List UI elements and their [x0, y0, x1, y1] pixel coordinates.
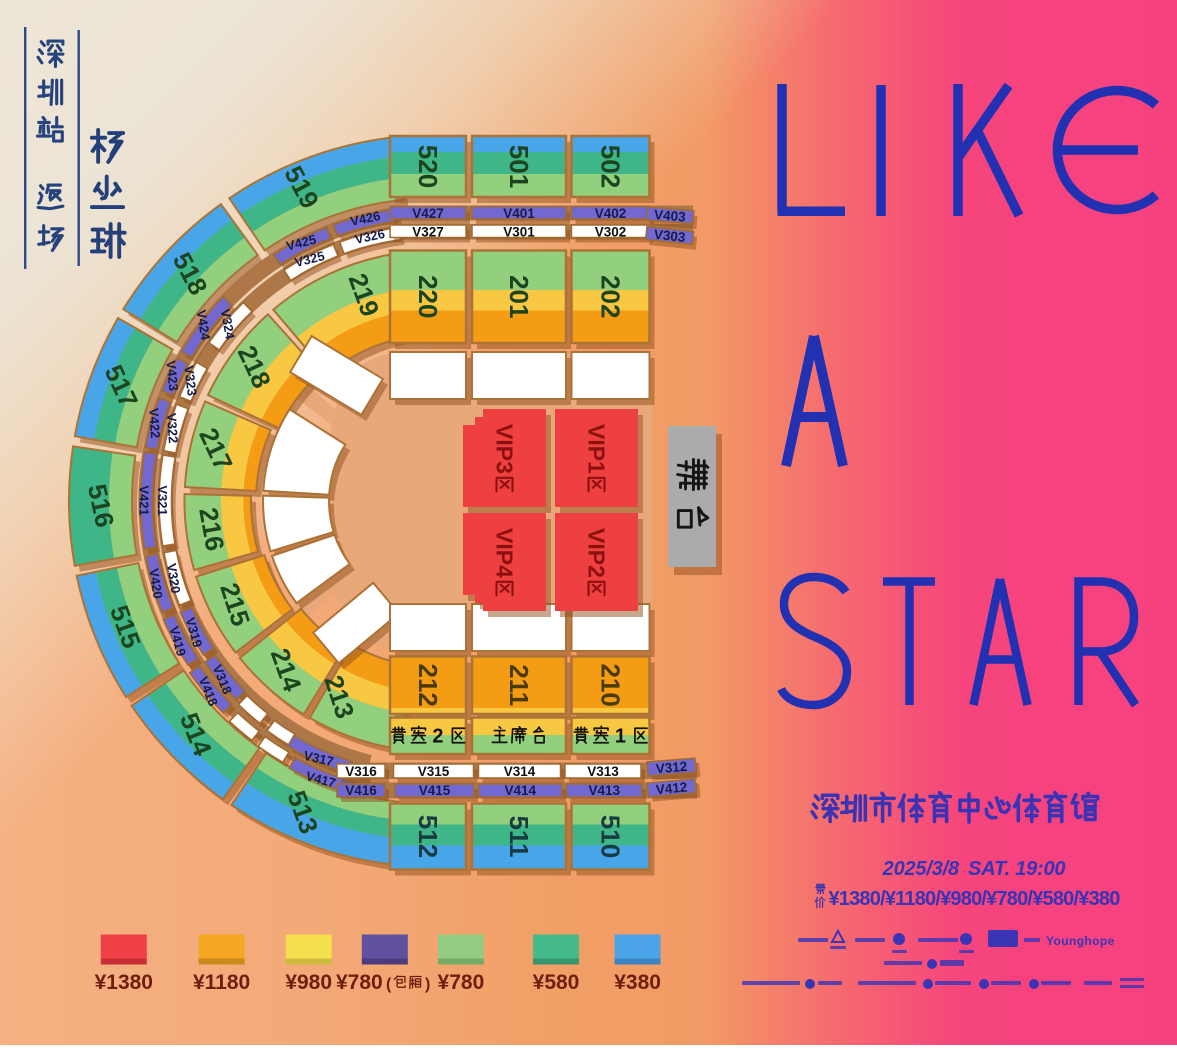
svg-text:2: 2	[432, 726, 443, 748]
svg-text:V321: V321	[155, 485, 170, 515]
svg-text:V422: V422	[146, 408, 163, 439]
svg-text:¥980: ¥980	[285, 971, 332, 994]
svg-text:V416: V416	[345, 783, 377, 798]
svg-text:¥780: ¥780	[438, 971, 485, 994]
svg-text:¥1380/¥1180/¥980/¥780/¥580/¥38: ¥1380/¥1180/¥980/¥780/¥580/¥380	[828, 888, 1120, 910]
svg-text:V427: V427	[412, 206, 444, 221]
svg-text:VIP1: VIP1	[584, 424, 610, 474]
svg-text:V301: V301	[503, 225, 535, 240]
svg-text:2025/3/8 SAT. 19:00: 2025/3/8 SAT. 19:00	[882, 858, 1066, 880]
svg-text:V314: V314	[504, 764, 536, 779]
svg-text:V327: V327	[412, 225, 444, 240]
svg-text:¥1380: ¥1380	[95, 971, 153, 994]
svg-text:V403: V403	[654, 207, 687, 224]
svg-text:512: 512	[413, 815, 443, 858]
svg-text:220: 220	[413, 275, 443, 318]
svg-text:V312: V312	[655, 759, 688, 776]
svg-text:V415: V415	[419, 783, 451, 798]
svg-text:502: 502	[596, 145, 626, 188]
svg-text:¥780: ¥780	[336, 971, 383, 994]
svg-text:VIP2: VIP2	[584, 528, 610, 578]
svg-text:V316: V316	[345, 764, 377, 779]
svg-text:): )	[425, 976, 430, 993]
svg-text:202: 202	[596, 275, 626, 318]
svg-text:V402: V402	[595, 206, 627, 221]
svg-text:201: 201	[504, 275, 534, 318]
svg-text:510: 510	[596, 815, 626, 858]
svg-text:V423: V423	[163, 360, 181, 392]
svg-text:V313: V313	[587, 764, 619, 779]
svg-text:520: 520	[413, 145, 443, 188]
svg-text:VIP4: VIP4	[492, 528, 518, 578]
svg-text:¥580: ¥580	[533, 971, 580, 994]
svg-text:210: 210	[596, 664, 626, 707]
svg-text:V421: V421	[137, 485, 152, 515]
svg-text:V315: V315	[418, 764, 450, 779]
svg-text:211: 211	[504, 664, 534, 706]
svg-text:501: 501	[504, 145, 534, 188]
svg-text:V401: V401	[503, 206, 535, 221]
svg-text:¥380: ¥380	[614, 971, 661, 994]
svg-text:511: 511	[504, 816, 534, 858]
svg-text:V322: V322	[164, 413, 181, 444]
svg-text:V413: V413	[588, 783, 620, 798]
svg-text:¥1180: ¥1180	[193, 971, 250, 994]
svg-text:212: 212	[413, 664, 443, 707]
svg-text:(: (	[386, 976, 392, 993]
svg-text:V414: V414	[504, 783, 536, 798]
svg-text:V412: V412	[655, 780, 688, 798]
svg-text:Younghope: Younghope	[1046, 934, 1115, 948]
svg-text:VIP3: VIP3	[492, 424, 518, 474]
svg-text:1: 1	[615, 726, 626, 748]
svg-text:V302: V302	[595, 225, 627, 240]
